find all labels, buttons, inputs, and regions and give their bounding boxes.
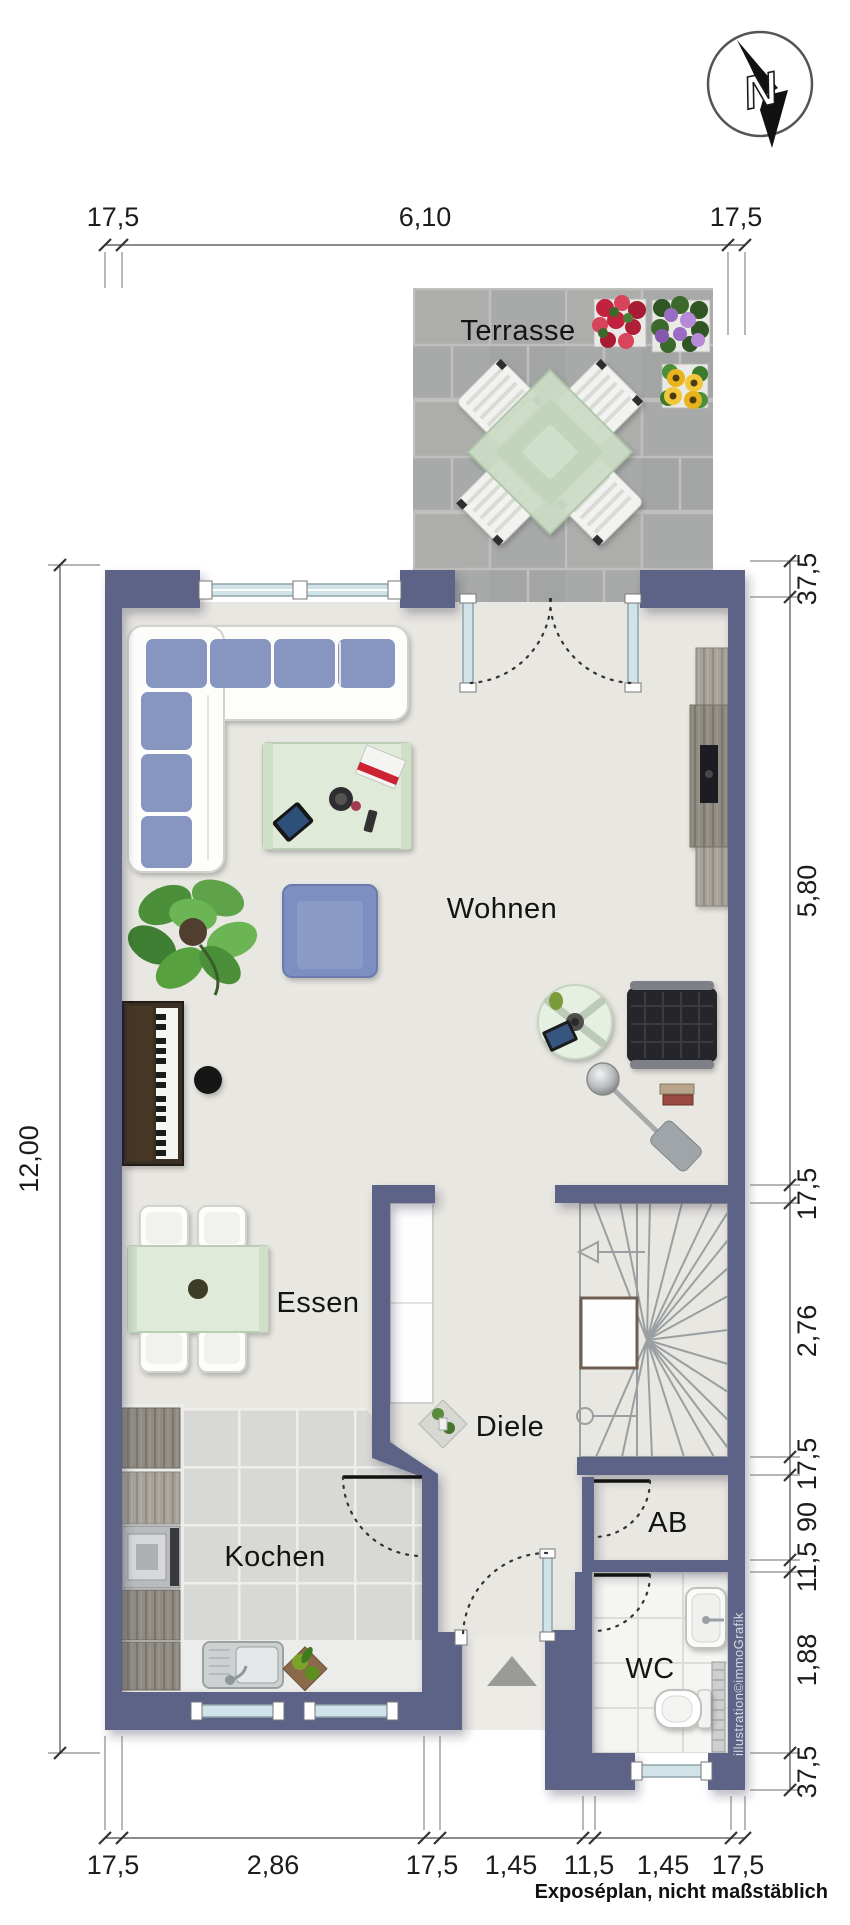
- wc-window: [631, 1762, 712, 1780]
- books-stack: [660, 1084, 694, 1105]
- dim-right-4: 17,5: [792, 1438, 822, 1491]
- illustrator-credit: illustration©immoGrafik: [731, 1612, 746, 1756]
- dim-right-2: 17,5: [792, 1168, 822, 1221]
- dim-right-6: 11,5: [792, 1542, 822, 1593]
- room-label-ab: AB: [648, 1507, 688, 1539]
- side-table-round: [538, 985, 612, 1059]
- room-label-terrasse: Terrasse: [460, 315, 575, 347]
- dining-set: [128, 1206, 268, 1372]
- dim-right-3: 2,76: [792, 1305, 822, 1358]
- dim-bottom-3: 1,45: [485, 1850, 538, 1880]
- lounge-chair: [627, 981, 717, 1069]
- wc-radiator: [712, 1662, 725, 1752]
- room-label-diele: Diele: [476, 1411, 545, 1443]
- flower-box-sunflowers: [660, 364, 708, 409]
- dining-chair: [140, 1328, 188, 1372]
- dim-right-5: 90: [792, 1502, 822, 1532]
- dim-top-2: 17,5: [710, 202, 763, 232]
- terrace-area: Terrasse: [413, 288, 713, 608]
- dining-chair: [198, 1328, 246, 1372]
- wc-sink: [686, 1588, 726, 1648]
- flower-box-red: [592, 295, 646, 349]
- piano-stool: [194, 1066, 222, 1094]
- armchair: [283, 885, 377, 977]
- room-label-kochen: Kochen: [224, 1541, 325, 1573]
- room-label-wc: WC: [625, 1653, 674, 1685]
- dim-right-1: 5,80: [792, 865, 822, 918]
- oven: [122, 1526, 180, 1588]
- dining-chair: [198, 1206, 246, 1250]
- flower-box-purple: [651, 296, 710, 353]
- living-room-window: [199, 581, 401, 599]
- floorplan-svg: Terrasse: [0, 0, 850, 1920]
- dim-right-0: 37,5: [792, 553, 822, 606]
- dim-right-8: 37,5: [792, 1746, 822, 1799]
- kitchen-sink: [203, 1642, 283, 1688]
- room-label-wohnen: Wohnen: [447, 893, 558, 925]
- terrace-threshold: [455, 560, 640, 608]
- dim-bottom-0: 17,5: [87, 1850, 140, 1880]
- coffee-table: [263, 743, 411, 849]
- dim-bottom-6: 17,5: [712, 1850, 765, 1880]
- dim-bottom-4: 11,5: [564, 1850, 615, 1880]
- floorplan-page: Terrasse: [0, 0, 850, 1920]
- footer-note: Exposéplan, nicht maßstäblich: [535, 1881, 828, 1903]
- dim-top-0: 17,5: [87, 202, 140, 232]
- dim-bottom-2: 17,5: [406, 1850, 459, 1880]
- dim-bottom-1: 2,86: [247, 1850, 300, 1880]
- room-label-essen: Essen: [276, 1287, 359, 1319]
- lamp-shade: [587, 1063, 619, 1095]
- dim-left-0: 12,00: [14, 1125, 44, 1193]
- wc-toilet: [655, 1690, 711, 1728]
- dining-chair: [140, 1206, 188, 1250]
- stair-landing: [581, 1298, 637, 1368]
- dim-top-1: 6,10: [399, 202, 452, 232]
- dim-bottom-5: 1,45: [637, 1850, 690, 1880]
- tv-board: [690, 648, 728, 906]
- dim-right-7: 1,88: [792, 1634, 822, 1687]
- terrace-table-set: [455, 358, 643, 546]
